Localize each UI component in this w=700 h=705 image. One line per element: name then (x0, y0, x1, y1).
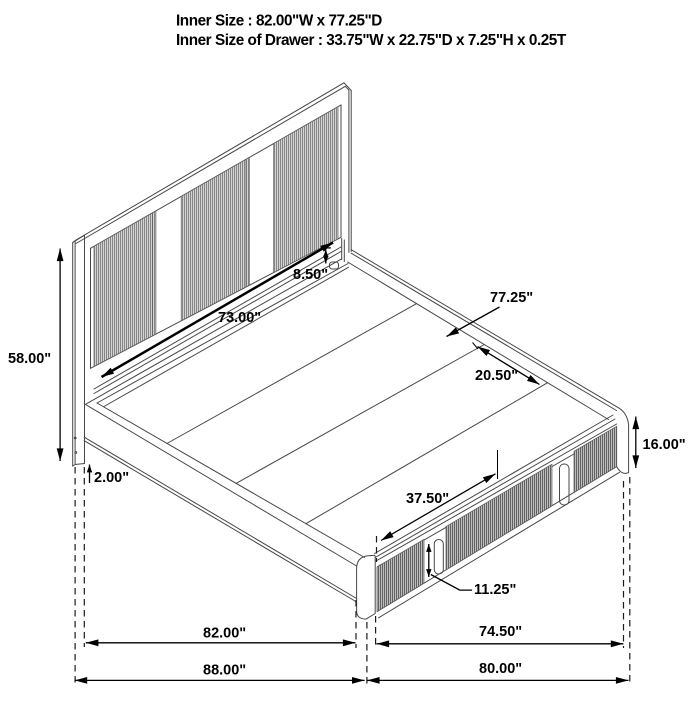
svg-text:8.50": 8.50" (293, 267, 328, 283)
svg-text:88.00": 88.00" (203, 663, 246, 679)
svg-text:37.50": 37.50" (406, 491, 449, 507)
svg-text:74.50": 74.50" (479, 624, 522, 640)
svg-text:73.00": 73.00" (218, 310, 261, 326)
svg-text:80.00": 80.00" (479, 661, 522, 677)
svg-text:82.00": 82.00" (203, 626, 246, 642)
svg-text:77.25": 77.25" (490, 290, 533, 306)
svg-text:20.50": 20.50" (475, 368, 518, 384)
svg-text:58.00": 58.00" (8, 351, 51, 367)
svg-text:2.00": 2.00" (94, 470, 129, 486)
svg-text:11.25": 11.25" (474, 582, 516, 598)
svg-text:16.00": 16.00" (643, 437, 686, 453)
svg-text:Inner Size of Drawer : 33.75"W: Inner Size of Drawer : 33.75"W x 22.75"D… (176, 32, 567, 49)
svg-text:Inner Size : 82.00"W x 77.25"D: Inner Size : 82.00"W x 77.25"D (176, 13, 382, 30)
